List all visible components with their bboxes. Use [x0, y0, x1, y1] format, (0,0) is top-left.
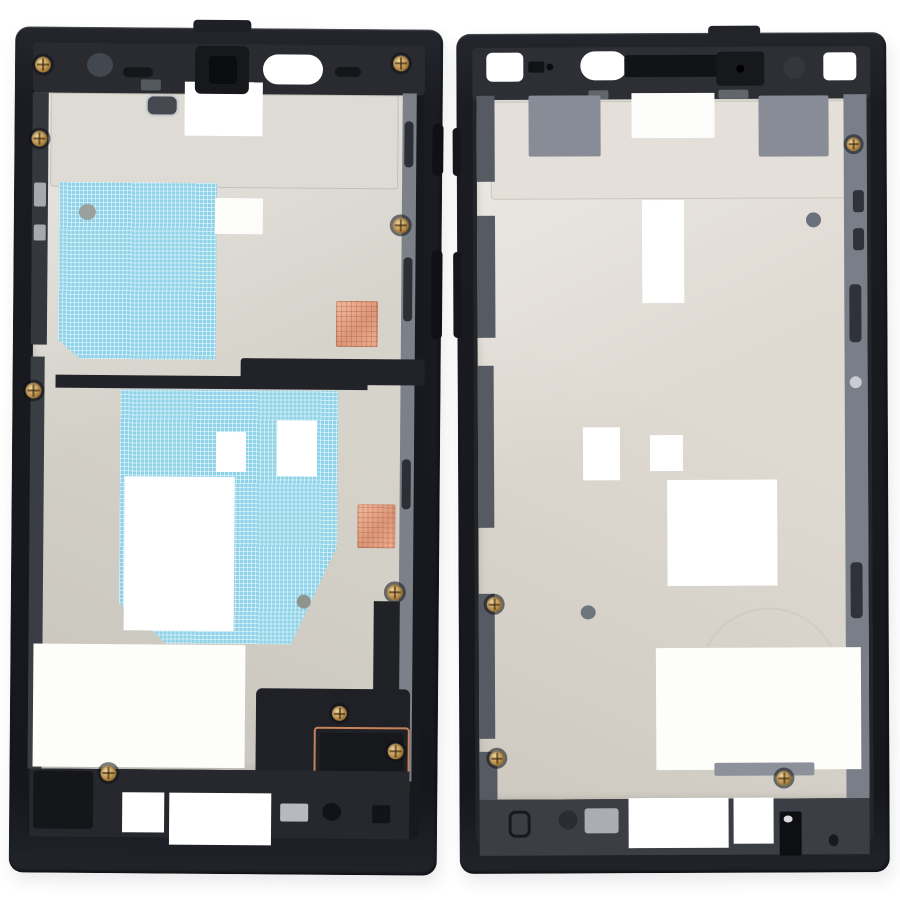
sensor-slot	[146, 94, 179, 116]
screw-right-upper	[393, 217, 409, 233]
camera-hole	[783, 56, 805, 78]
screw-left-upper	[31, 130, 47, 146]
white-corner-cutout-left	[486, 53, 523, 82]
earpiece-cutout	[263, 54, 323, 84]
bottom-cutout-a	[629, 798, 729, 848]
screw-right-mid	[387, 584, 403, 600]
film-cutout-a	[216, 432, 246, 472]
top-edge-tab	[193, 20, 251, 32]
screw-top-right	[393, 55, 409, 71]
earpiece-cutout	[580, 51, 627, 80]
bottom-square-hole	[372, 805, 390, 823]
plate-dot-upper	[806, 212, 821, 227]
screw-bottom-mid	[776, 770, 791, 785]
top-edge-tab	[708, 26, 760, 37]
left-rail-1	[476, 96, 494, 182]
screw-bracket	[332, 706, 347, 721]
front-camera-window	[209, 56, 237, 84]
bottom-corner-box	[33, 770, 93, 828]
bottom-cutout-a	[122, 792, 164, 832]
rail-slot-r3	[402, 459, 411, 509]
strip-nub-dot	[546, 64, 553, 71]
gray-patch-right	[758, 95, 828, 156]
rail-tab-2	[34, 224, 46, 240]
speaker-arm	[373, 601, 400, 693]
rail-dot	[850, 376, 862, 388]
top-black-bar	[624, 55, 718, 77]
white-cutout-large	[667, 480, 777, 586]
film-cutout-large	[124, 476, 235, 631]
film-cutout-b	[277, 420, 317, 476]
rail-slot-d	[850, 562, 862, 618]
screw-bottom-right	[388, 743, 404, 759]
film-dot-top	[79, 204, 96, 220]
bottom-cutout-b	[734, 798, 774, 844]
white-slot-upper	[642, 200, 684, 303]
screw-top-left	[35, 56, 51, 72]
shelf-tab-b	[718, 90, 748, 99]
bottom-hole-rounded	[509, 811, 531, 838]
bottom-cutout-b	[169, 793, 271, 846]
gray-patch-left	[528, 95, 600, 156]
white-cutout-m1	[583, 427, 620, 480]
strip-slot-right	[335, 67, 361, 77]
white-cutout-bottom-large	[33, 643, 246, 768]
screw-rail-top	[847, 137, 861, 151]
copper-patch-top	[336, 301, 378, 347]
bottom-small-hole	[829, 834, 839, 846]
plate-tab-left	[141, 79, 161, 90]
bottom-module-dot	[784, 815, 793, 822]
rail-slot-a	[853, 190, 864, 212]
divider-block	[241, 358, 425, 385]
left-rail-3	[478, 366, 495, 528]
left-rail-2	[477, 216, 496, 338]
right-frame-back-view	[456, 32, 890, 874]
outer-edge-nub-1	[453, 128, 461, 176]
copper-patch-bottom	[357, 504, 395, 548]
white-cutout-bottom-large	[656, 647, 862, 770]
film-dot-bottom	[297, 595, 311, 609]
power-button	[432, 124, 443, 176]
white-corner-cutout-right	[823, 52, 856, 80]
white-cutout-mid	[215, 198, 263, 234]
plate-dot-bottom	[581, 605, 596, 619]
rail-slot-b	[853, 228, 864, 250]
white-cutout-top	[631, 93, 714, 138]
screw-bottom-left-top	[487, 597, 502, 612]
white-cutout-m2	[650, 435, 683, 471]
outer-edge-nub-2	[453, 252, 461, 338]
left-frame-front-view	[9, 26, 444, 875]
bottom-light-pad	[585, 808, 619, 833]
rail-slot-r2	[403, 257, 413, 321]
front-camera-hole	[87, 53, 113, 77]
screw-bottom-left	[100, 765, 116, 781]
rail-slot-r1	[404, 121, 413, 167]
screw-bottom-left-bot	[489, 751, 504, 766]
left-rail-4	[479, 594, 496, 739]
strip-nub	[528, 62, 544, 73]
screw-left-mid	[25, 382, 41, 398]
rail-tab-1	[34, 182, 46, 206]
bottom-gray-pad	[280, 803, 308, 821]
bottom-circle	[559, 810, 578, 829]
bottom-mic-hole	[322, 803, 341, 821]
strip-slot-left	[123, 67, 153, 77]
rail-slot-c	[849, 284, 861, 342]
camera-module-hole	[736, 65, 744, 73]
plate-step	[714, 762, 814, 775]
product-photo	[0, 0, 900, 900]
volume-button	[431, 250, 443, 340]
